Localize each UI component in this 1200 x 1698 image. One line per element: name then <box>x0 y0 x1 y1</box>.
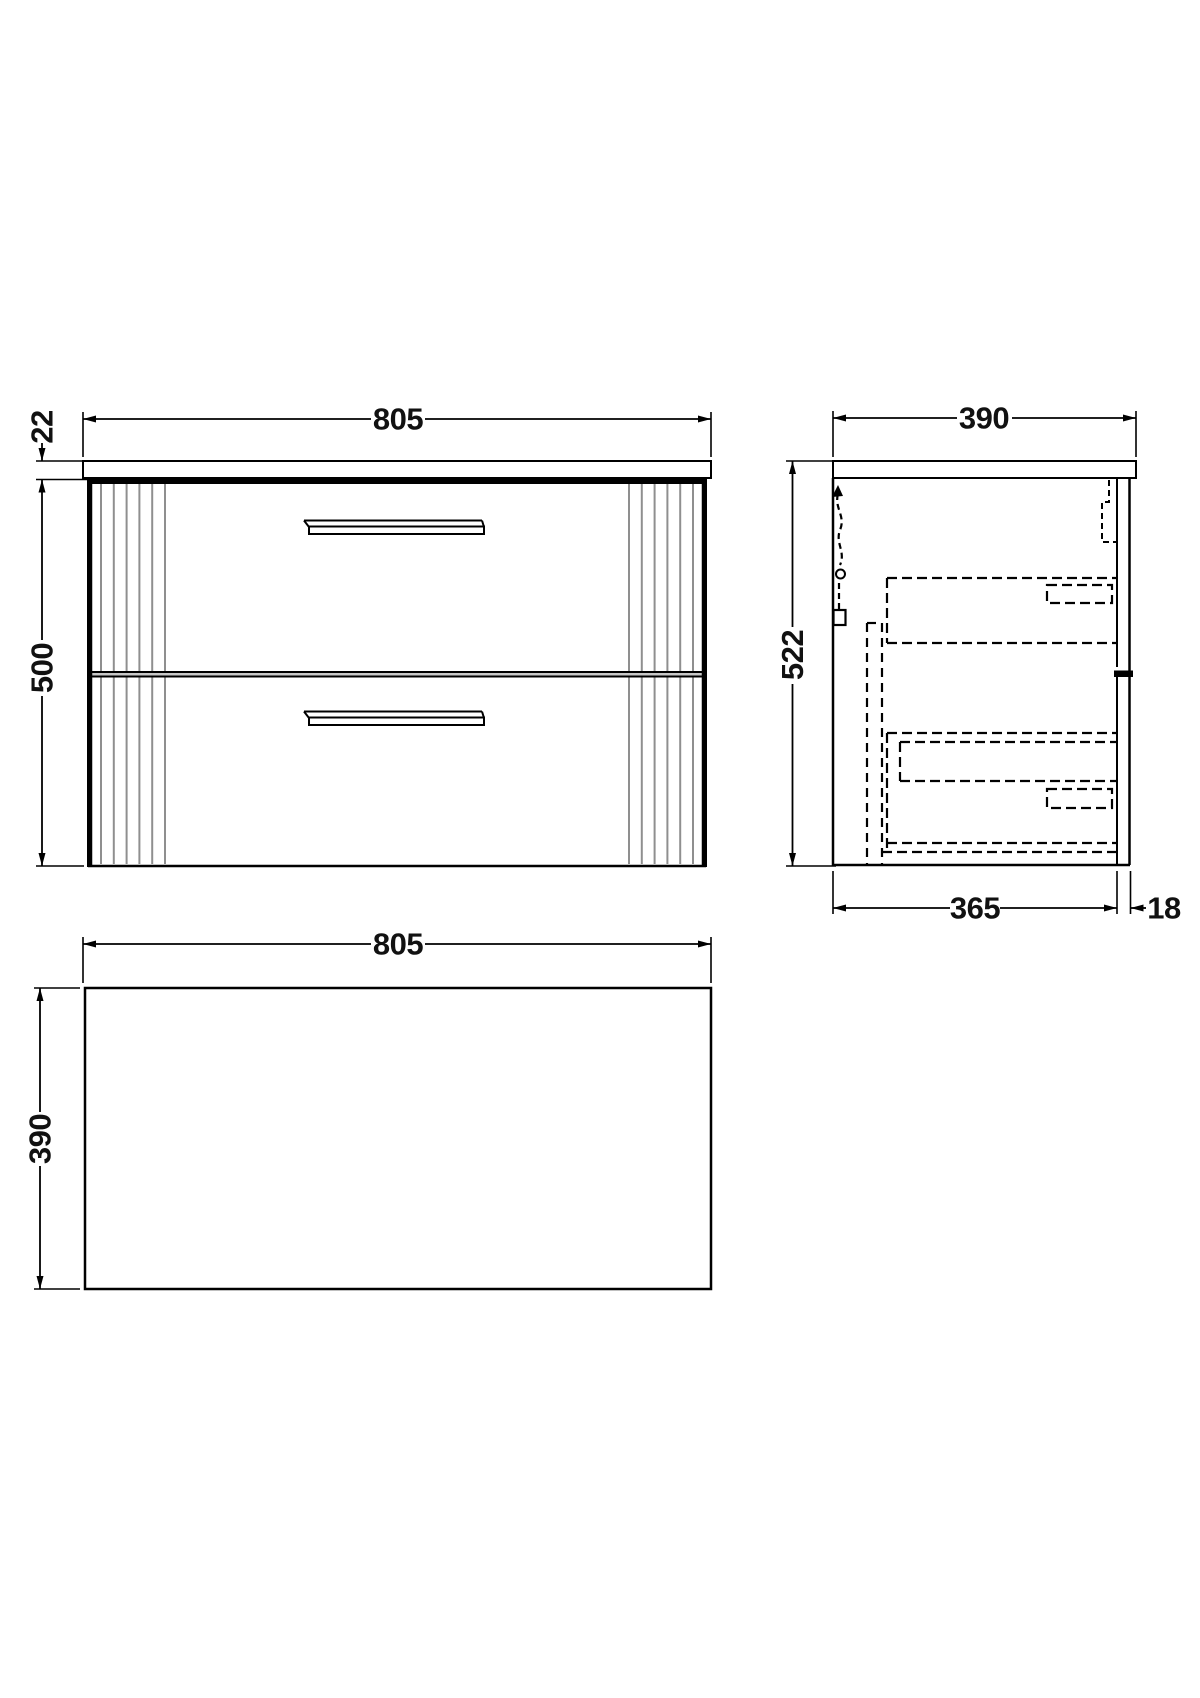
arrowhead-left-small <box>1131 905 1144 912</box>
arrowhead-up <box>39 480 46 493</box>
arrowhead-up <box>37 988 44 1001</box>
side-depth-dimension: 390 <box>833 401 1136 458</box>
side-drawer-front-joint <box>1114 671 1133 678</box>
side-height-dimension: 522 <box>775 461 836 866</box>
side-worktop <box>833 461 1136 478</box>
arrowhead-left <box>833 415 846 422</box>
side-carcass-depth-dimension: 365 18 <box>833 871 1181 926</box>
top-drawer-handle <box>304 521 484 535</box>
arrowhead-right <box>1123 415 1136 422</box>
arrowhead-right <box>698 416 711 423</box>
arrowhead-down <box>37 1276 44 1289</box>
arrowhead-right <box>1104 905 1117 912</box>
front-height-dimension: 500 <box>25 480 85 867</box>
front-height-dim-label: 500 <box>25 643 60 693</box>
side-lower-drawer-hidden <box>882 733 1117 852</box>
arrowhead-left <box>83 416 96 423</box>
side-upper-drawer-hidden <box>887 578 1117 643</box>
front-drawer-divider <box>88 672 706 677</box>
bottom-drawer-handle <box>304 712 484 726</box>
plan-view: 805 390 <box>23 927 712 1290</box>
vanity-unit-technical-drawing: 805 22 500 <box>0 0 1200 1698</box>
arrowhead-left <box>83 941 96 948</box>
front-view: 805 22 500 <box>25 402 712 867</box>
side-upper-drawer-runner <box>1047 585 1112 603</box>
side-depth-dim-label: 390 <box>959 401 1009 436</box>
front-width-dim-label: 805 <box>373 402 423 437</box>
plan-width-dim-label: 805 <box>373 927 423 962</box>
side-front-thickness-dim-label: 18 <box>1147 891 1181 926</box>
front-worktop <box>83 461 711 478</box>
side-carcass-depth-dim-label: 365 <box>950 891 1000 926</box>
front-worktop-thickness-dim-label: 22 <box>25 410 60 443</box>
side-lower-drawer-runner <box>1047 789 1112 808</box>
plan-worktop-outline <box>85 988 711 1289</box>
plan-depth-dimension: 390 <box>23 988 81 1289</box>
side-height-dim-label: 522 <box>775 630 810 680</box>
plan-depth-dim-label: 390 <box>23 1114 58 1164</box>
arrowhead-down <box>39 853 46 866</box>
arrowhead-down <box>789 853 796 866</box>
side-hidden-channel <box>867 623 882 864</box>
side-hidden-rebate-step <box>1102 480 1117 542</box>
technical-drawing-page: 805 22 500 <box>0 0 1200 1698</box>
plan-width-dimension: 805 <box>83 927 711 984</box>
arrowhead-right <box>698 941 711 948</box>
arrowhead-up <box>789 461 796 474</box>
front-worktop-thickness-dimension: 22 <box>25 410 91 479</box>
front-width-dimension: 805 <box>83 402 711 458</box>
arrowhead-left <box>833 905 846 912</box>
side-view: 390 522 365 18 <box>775 401 1181 926</box>
arrowhead-down <box>39 448 46 461</box>
